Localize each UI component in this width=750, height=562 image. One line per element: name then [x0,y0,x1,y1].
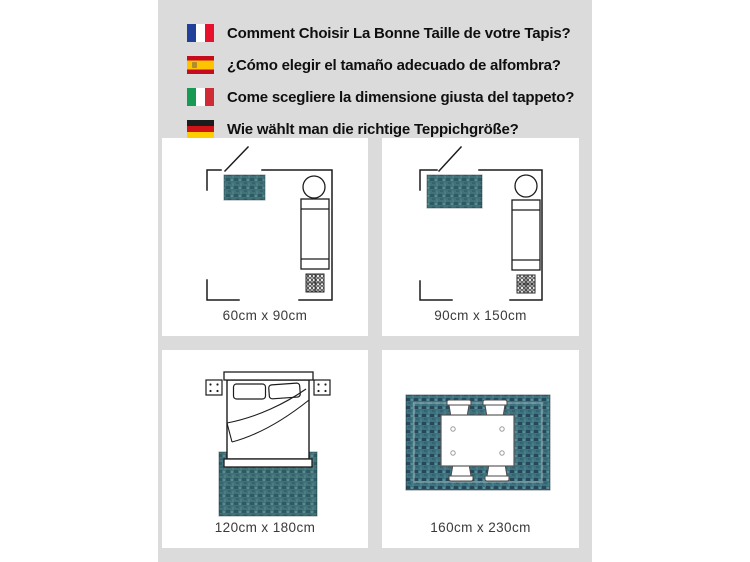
italy-flag-icon [187,88,214,106]
size-label-60x90: 60cm x 90cm [162,308,368,323]
germany-flag-icon [187,120,214,138]
header-line-french: Comment Choisir La Bonne Taille de votre… [227,25,570,42]
france-flag-icon [187,24,214,42]
panel-160x230: 160cm x 230cm [382,350,579,548]
panel-120x180: 120cm x 180cm [162,350,368,548]
panel-60x90: 60cm x 90cm [162,138,368,336]
size-label-120x180: 120cm x 180cm [162,520,368,535]
header-row-spanish: ¿Cómo elegir el tamaño adecuado de alfom… [187,49,592,81]
rug-size-guide-image: Comment Choisir La Bonne Taille de votre… [158,0,592,562]
header-line-italian: Come scegliere la dimensione giusta del … [227,89,574,106]
header-line-spanish: ¿Cómo elegir el tamaño adecuado de alfom… [227,57,561,74]
size-label-160x230: 160cm x 230cm [382,520,579,535]
spain-flag-icon [187,56,214,74]
bed-on-rug-diagram [162,350,368,548]
header-row-italian: Come scegliere la dimensione giusta del … [187,81,592,113]
dining-table-on-rug-diagram [382,350,579,548]
floor-plan-small-rug-diagram [162,138,368,336]
panel-90x150: 90cm x 150cm [382,138,579,336]
size-panels-grid: 60cm x 90cm [162,138,579,548]
header-row-french: Comment Choisir La Bonne Taille de votre… [187,17,592,49]
header: Comment Choisir La Bonne Taille de votre… [187,17,592,145]
floor-plan-medium-rug-diagram [382,138,579,336]
size-label-90x150: 90cm x 150cm [382,308,579,323]
header-line-german: Wie wählt man die richtige Teppichgröße? [227,121,519,138]
